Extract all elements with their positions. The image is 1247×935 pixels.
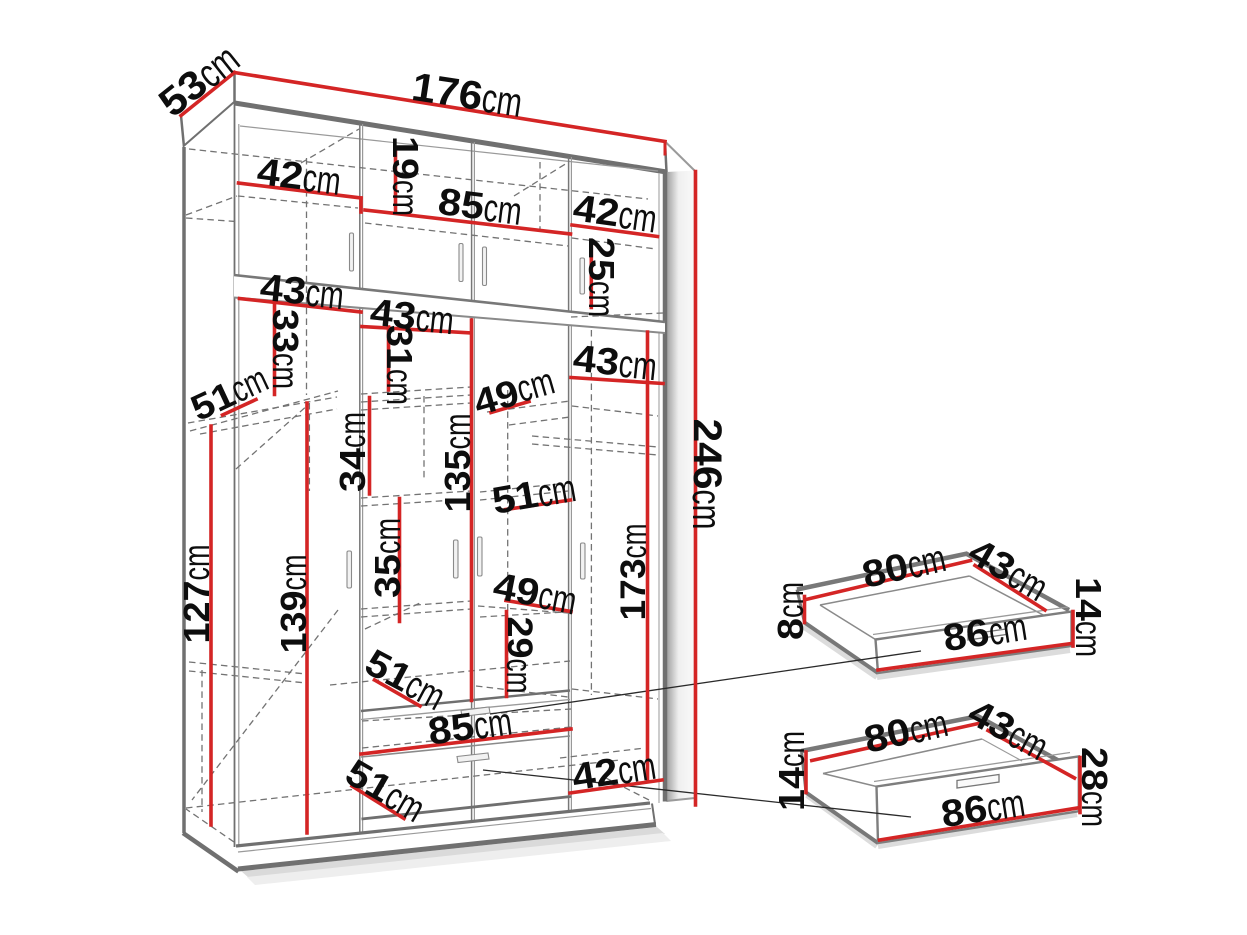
svg-text:33cm: 33cm <box>266 309 307 389</box>
svg-text:29cm: 29cm <box>500 617 541 694</box>
svg-text:246cm: 246cm <box>684 419 730 530</box>
svg-text:14cm: 14cm <box>1069 577 1110 657</box>
svg-text:14cm: 14cm <box>771 731 812 811</box>
svg-text:28cm: 28cm <box>1075 747 1116 827</box>
svg-text:34cm: 34cm <box>332 412 373 492</box>
svg-text:25cm: 25cm <box>582 237 623 317</box>
svg-text:35cm: 35cm <box>367 518 408 598</box>
svg-text:127cm: 127cm <box>176 545 217 644</box>
svg-text:31cm: 31cm <box>380 325 421 405</box>
svg-text:139cm: 139cm <box>273 555 314 654</box>
svg-text:135cm: 135cm <box>437 414 478 513</box>
svg-text:19cm: 19cm <box>386 136 427 216</box>
svg-text:8cm: 8cm <box>770 582 811 640</box>
svg-text:173cm: 173cm <box>613 524 654 621</box>
